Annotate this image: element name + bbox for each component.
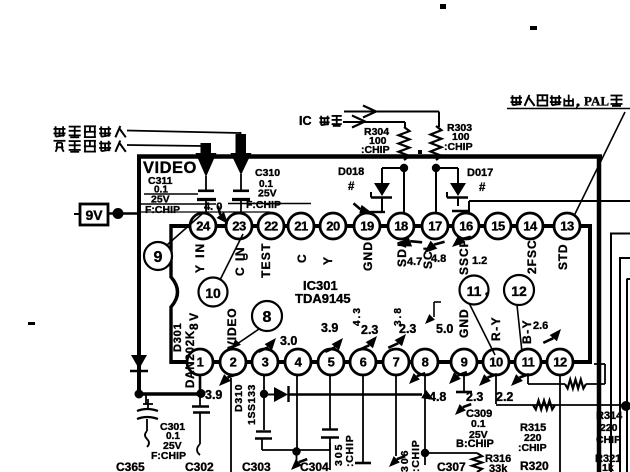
svg-text:STD: STD bbox=[556, 244, 570, 270]
svg-text:25V: 25V bbox=[258, 188, 277, 200]
svg-text::CHIP: :CHIP bbox=[444, 141, 473, 153]
svg-text:24: 24 bbox=[196, 219, 211, 234]
svg-text:2.2: 2.2 bbox=[496, 390, 513, 404]
svg-text:21: 21 bbox=[294, 219, 308, 234]
svg-text:#: # bbox=[479, 182, 486, 194]
svg-text:R320: R320 bbox=[520, 459, 549, 472]
svg-text:11: 11 bbox=[467, 283, 482, 299]
svg-text:F:CHIP: F:CHIP bbox=[151, 450, 186, 462]
svg-text:13: 13 bbox=[560, 219, 574, 234]
svg-text:D310: D310 bbox=[233, 384, 245, 412]
svg-text:Y IN: Y IN bbox=[193, 242, 207, 273]
svg-text:1: 1 bbox=[197, 355, 204, 370]
svg-text::CHIP: :CHIP bbox=[361, 144, 390, 156]
svg-text:11: 11 bbox=[522, 355, 535, 370]
svg-text:3.9: 3.9 bbox=[205, 388, 222, 402]
svg-text:17: 17 bbox=[428, 219, 442, 234]
svg-text:2.3: 2.3 bbox=[466, 390, 483, 404]
svg-text:1.2: 1.2 bbox=[472, 255, 487, 267]
svg-text:5.0: 5.0 bbox=[436, 322, 453, 336]
svg-text:12: 12 bbox=[553, 355, 567, 370]
svg-text:4.8: 4.8 bbox=[429, 390, 446, 404]
svg-text:14: 14 bbox=[523, 219, 538, 234]
svg-text:20: 20 bbox=[326, 219, 340, 234]
svg-text:#: # bbox=[348, 181, 355, 193]
svg-text:2.6: 2.6 bbox=[533, 320, 548, 332]
svg-text:9: 9 bbox=[461, 355, 468, 370]
svg-text:2: 2 bbox=[230, 355, 237, 370]
svg-text:3.0: 3.0 bbox=[280, 334, 297, 348]
svg-text:1k: 1k bbox=[602, 462, 614, 472]
svg-text:C303: C303 bbox=[242, 460, 271, 472]
svg-text:D018: D018 bbox=[338, 166, 364, 178]
svg-text:3.9: 3.9 bbox=[321, 321, 338, 335]
svg-text:9: 9 bbox=[154, 249, 163, 266]
svg-text::CHIP: :CHIP bbox=[410, 439, 422, 472]
svg-text:220: 220 bbox=[600, 422, 618, 434]
svg-text:15: 15 bbox=[491, 219, 505, 234]
svg-text:F:CHIP: F:CHIP bbox=[246, 199, 281, 211]
svg-text:B-Y: B-Y bbox=[520, 319, 534, 344]
svg-text:C307: C307 bbox=[437, 460, 466, 472]
svg-text:B:CHIP: B:CHIP bbox=[456, 438, 494, 450]
svg-text:TEST: TEST bbox=[259, 243, 273, 278]
svg-text:2FSC: 2FSC bbox=[525, 239, 539, 274]
svg-text:R-Y: R-Y bbox=[489, 316, 503, 341]
svg-text:C: C bbox=[295, 254, 309, 263]
svg-text:GND: GND bbox=[457, 308, 471, 338]
svg-text:C365: C365 bbox=[116, 460, 145, 472]
svg-text:PAL: PAL bbox=[584, 94, 609, 109]
svg-text:3: 3 bbox=[262, 355, 269, 370]
svg-text:2.3: 2.3 bbox=[399, 322, 416, 336]
svg-text:33k: 33k bbox=[489, 463, 508, 472]
svg-text:C304: C304 bbox=[300, 460, 329, 472]
svg-text::CHIP: :CHIP bbox=[518, 442, 547, 454]
svg-text:0: 0 bbox=[243, 252, 248, 262]
svg-text:TDA9145: TDA9145 bbox=[295, 291, 351, 306]
svg-text:C310: C310 bbox=[255, 167, 280, 179]
svg-text:9V: 9V bbox=[85, 207, 103, 223]
svg-text:CHIP: CHIP bbox=[596, 434, 621, 446]
svg-text:12: 12 bbox=[511, 283, 527, 299]
svg-text:18: 18 bbox=[394, 219, 408, 234]
svg-text:10: 10 bbox=[205, 285, 221, 301]
svg-text:D017: D017 bbox=[467, 167, 493, 179]
svg-text:IC: IC bbox=[299, 114, 312, 128]
svg-text:Y: Y bbox=[321, 257, 335, 265]
svg-text:GND: GND bbox=[361, 241, 375, 271]
svg-text:R314: R314 bbox=[596, 410, 623, 422]
svg-text:19: 19 bbox=[360, 219, 374, 234]
svg-text:10: 10 bbox=[489, 355, 503, 370]
svg-text:8: 8 bbox=[263, 309, 272, 326]
svg-text:7: 7 bbox=[393, 355, 400, 370]
svg-text:6: 6 bbox=[360, 355, 367, 370]
svg-text:4.8: 4.8 bbox=[431, 253, 446, 265]
svg-text:22: 22 bbox=[264, 219, 278, 234]
svg-text:5: 5 bbox=[328, 355, 335, 370]
svg-text:16: 16 bbox=[459, 219, 473, 234]
svg-text:1SS133: 1SS133 bbox=[246, 384, 258, 425]
svg-text:DAN202K: DAN202K bbox=[185, 330, 197, 388]
svg-text:8V: 8V bbox=[187, 310, 201, 330]
svg-text:8: 8 bbox=[422, 355, 429, 370]
svg-text:4.7: 4.7 bbox=[407, 256, 422, 268]
svg-text:C302: C302 bbox=[185, 460, 214, 472]
svg-text:F:CHIP: F:CHIP bbox=[145, 204, 180, 216]
svg-text:D301: D301 bbox=[172, 323, 184, 353]
svg-text::CHIP: :CHIP bbox=[344, 434, 356, 467]
svg-text:23: 23 bbox=[232, 219, 246, 234]
svg-text:2.3: 2.3 bbox=[361, 323, 378, 337]
